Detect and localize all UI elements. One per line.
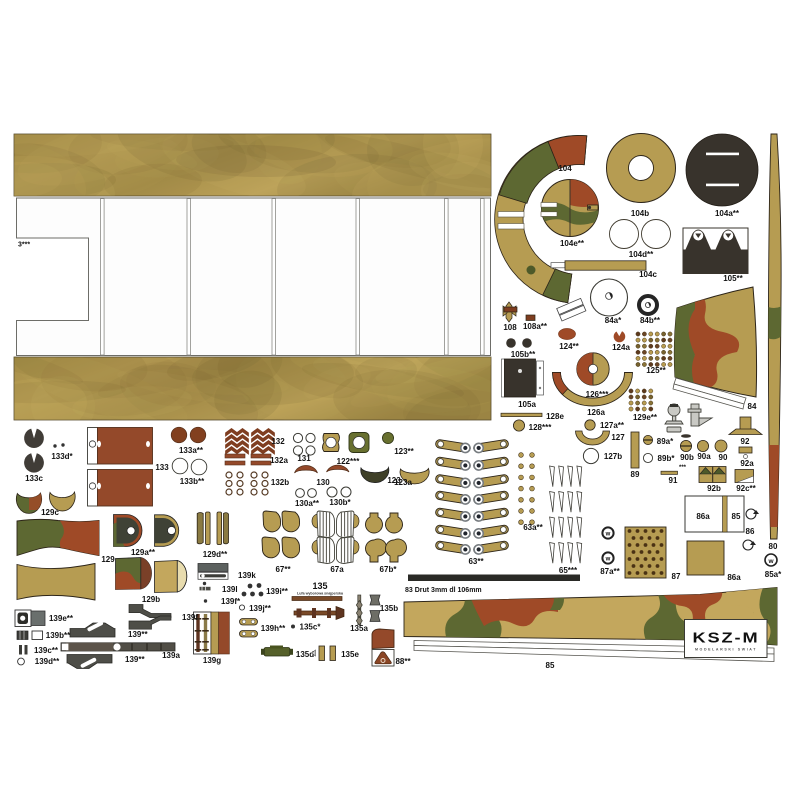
svg-text:92: 92 bbox=[741, 437, 750, 446]
svg-text:108: 108 bbox=[503, 323, 517, 332]
svg-text:65***: 65*** bbox=[559, 566, 578, 575]
svg-text:124a: 124a bbox=[612, 343, 630, 352]
svg-text:129: 129 bbox=[101, 555, 115, 564]
svg-text:135e: 135e bbox=[341, 650, 359, 659]
svg-text:139h**: 139h** bbox=[261, 624, 286, 633]
svg-text:133: 133 bbox=[155, 463, 169, 472]
svg-text:125**: 125** bbox=[646, 366, 666, 375]
svg-text:104: 104 bbox=[558, 164, 572, 173]
svg-text:139f: 139f bbox=[182, 613, 198, 622]
svg-text:88**: 88** bbox=[395, 657, 411, 666]
svg-text:139g: 139g bbox=[203, 656, 221, 665]
svg-text:104c: 104c bbox=[639, 270, 657, 279]
svg-text:133d*: 133d* bbox=[51, 452, 73, 461]
svg-text:133a**: 133a** bbox=[179, 446, 204, 455]
svg-text:123**: 123** bbox=[394, 447, 414, 456]
svg-text:131: 131 bbox=[297, 454, 311, 463]
svg-text:139i**: 139i** bbox=[266, 587, 289, 596]
svg-text:139a: 139a bbox=[162, 651, 180, 660]
svg-text:85a*: 85a* bbox=[765, 570, 782, 579]
svg-text:86a: 86a bbox=[727, 573, 741, 582]
svg-text:129e**: 129e** bbox=[633, 413, 658, 422]
svg-text:139f*: 139f* bbox=[221, 597, 241, 606]
svg-text:139d**: 139d** bbox=[35, 657, 60, 666]
svg-text:129d**: 129d** bbox=[203, 550, 228, 559]
svg-text:104d**: 104d** bbox=[629, 250, 654, 259]
svg-text:80: 80 bbox=[769, 542, 778, 551]
svg-text:w: w bbox=[605, 532, 611, 538]
svg-text:90: 90 bbox=[719, 453, 728, 462]
svg-text:87a**: 87a** bbox=[600, 567, 620, 576]
svg-text:139c**: 139c** bbox=[34, 646, 59, 655]
svg-text:85: 85 bbox=[546, 661, 555, 670]
svg-text:84a*: 84a* bbox=[605, 316, 622, 325]
svg-text:128e: 128e bbox=[546, 412, 564, 421]
svg-text:83 Drut 3mm dl 106mm: 83 Drut 3mm dl 106mm bbox=[405, 587, 482, 594]
svg-text:67**: 67** bbox=[275, 565, 291, 574]
svg-text:67a: 67a bbox=[330, 565, 344, 574]
svg-text:***: *** bbox=[679, 465, 687, 471]
svg-text:KSZ-M: KSZ-M bbox=[693, 631, 760, 647]
svg-text:89: 89 bbox=[631, 470, 640, 479]
svg-text:105**: 105** bbox=[723, 274, 743, 283]
svg-text:135c*: 135c* bbox=[300, 623, 322, 632]
svg-text:86: 86 bbox=[746, 527, 755, 536]
svg-text:84b**: 84b** bbox=[640, 316, 661, 325]
svg-text:91: 91 bbox=[669, 476, 678, 485]
svg-text:92b: 92b bbox=[707, 484, 721, 493]
svg-text:90a: 90a bbox=[697, 452, 711, 461]
svg-text:63**: 63** bbox=[468, 557, 484, 566]
svg-text:133c: 133c bbox=[25, 474, 43, 483]
svg-text:127a**: 127a** bbox=[600, 421, 625, 430]
svg-text:139l: 139l bbox=[222, 585, 238, 594]
svg-text:104e**: 104e** bbox=[560, 239, 585, 248]
svg-text:w: w bbox=[605, 557, 611, 563]
svg-text:139b**: 139b** bbox=[46, 631, 71, 640]
svg-text:130a**: 130a** bbox=[295, 499, 320, 508]
svg-text:135d: 135d bbox=[296, 650, 314, 659]
svg-text:105b**: 105b** bbox=[511, 350, 536, 359]
svg-text:92a: 92a bbox=[740, 459, 754, 468]
svg-text:135b: 135b bbox=[380, 604, 398, 613]
svg-text:128***: 128*** bbox=[529, 423, 553, 432]
svg-text:122***: 122*** bbox=[337, 457, 361, 466]
svg-text:129b: 129b bbox=[142, 595, 160, 604]
svg-text:135a: 135a bbox=[350, 624, 368, 633]
svg-text:135: 135 bbox=[312, 581, 327, 591]
svg-text:132b: 132b bbox=[271, 478, 289, 487]
svg-text:132a: 132a bbox=[270, 456, 288, 465]
svg-text:90b: 90b bbox=[680, 453, 694, 462]
svg-text:89a*: 89a* bbox=[657, 437, 674, 446]
svg-text:139e**: 139e** bbox=[49, 614, 74, 623]
svg-text:129a**: 129a** bbox=[131, 548, 156, 557]
svg-text:MODELARSKI SWIAT: MODELARSKI SWIAT bbox=[695, 648, 757, 652]
svg-text:105a: 105a bbox=[518, 400, 536, 409]
svg-text:89b*: 89b* bbox=[658, 454, 676, 463]
svg-text:129c: 129c bbox=[41, 508, 59, 517]
svg-text:139**: 139** bbox=[128, 630, 148, 639]
svg-text:123a: 123a bbox=[394, 478, 412, 487]
svg-text:139**: 139** bbox=[125, 655, 145, 664]
svg-text:84: 84 bbox=[748, 402, 757, 411]
svg-text:104b: 104b bbox=[631, 209, 649, 218]
svg-text:104a**: 104a** bbox=[715, 209, 740, 218]
svg-text:108a**: 108a** bbox=[523, 322, 548, 331]
svg-text:63a**: 63a** bbox=[523, 523, 543, 532]
svg-text:124**: 124** bbox=[559, 342, 579, 351]
svg-text:133b**: 133b** bbox=[180, 477, 205, 486]
svg-text:130b*: 130b* bbox=[329, 498, 351, 507]
svg-text:92c**: 92c** bbox=[736, 484, 756, 493]
svg-text:139k: 139k bbox=[238, 571, 256, 580]
svg-text:127: 127 bbox=[611, 433, 625, 442]
svg-text:Lufa wyborowa snajperska: Lufa wyborowa snajperska bbox=[297, 592, 344, 596]
svg-text:86a: 86a bbox=[696, 512, 710, 521]
svg-text:3***: 3*** bbox=[18, 242, 30, 249]
svg-text:67b*: 67b* bbox=[380, 565, 398, 574]
svg-text:w: w bbox=[767, 558, 774, 565]
svg-text:139j**: 139j** bbox=[249, 604, 272, 613]
svg-text:130: 130 bbox=[316, 478, 330, 487]
svg-text:85: 85 bbox=[732, 512, 741, 521]
svg-text:127b: 127b bbox=[604, 452, 622, 461]
svg-text:87: 87 bbox=[672, 572, 681, 581]
svg-text:132: 132 bbox=[271, 437, 285, 446]
svg-text:126a: 126a bbox=[587, 408, 605, 417]
